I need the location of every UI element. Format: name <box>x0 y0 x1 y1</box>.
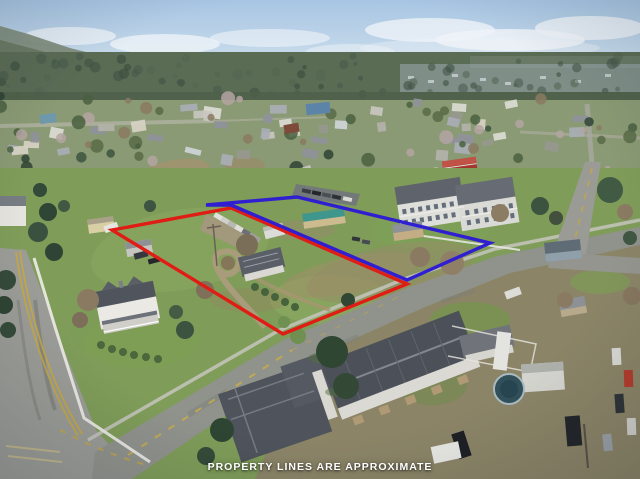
aerial-photo-scene <box>0 0 640 479</box>
aerial-photo: PROPERTY LINES ARE APPROXIMATE <box>0 0 640 479</box>
disclaimer-text: PROPERTY LINES ARE APPROXIMATE <box>208 461 433 473</box>
vignette <box>0 0 640 479</box>
